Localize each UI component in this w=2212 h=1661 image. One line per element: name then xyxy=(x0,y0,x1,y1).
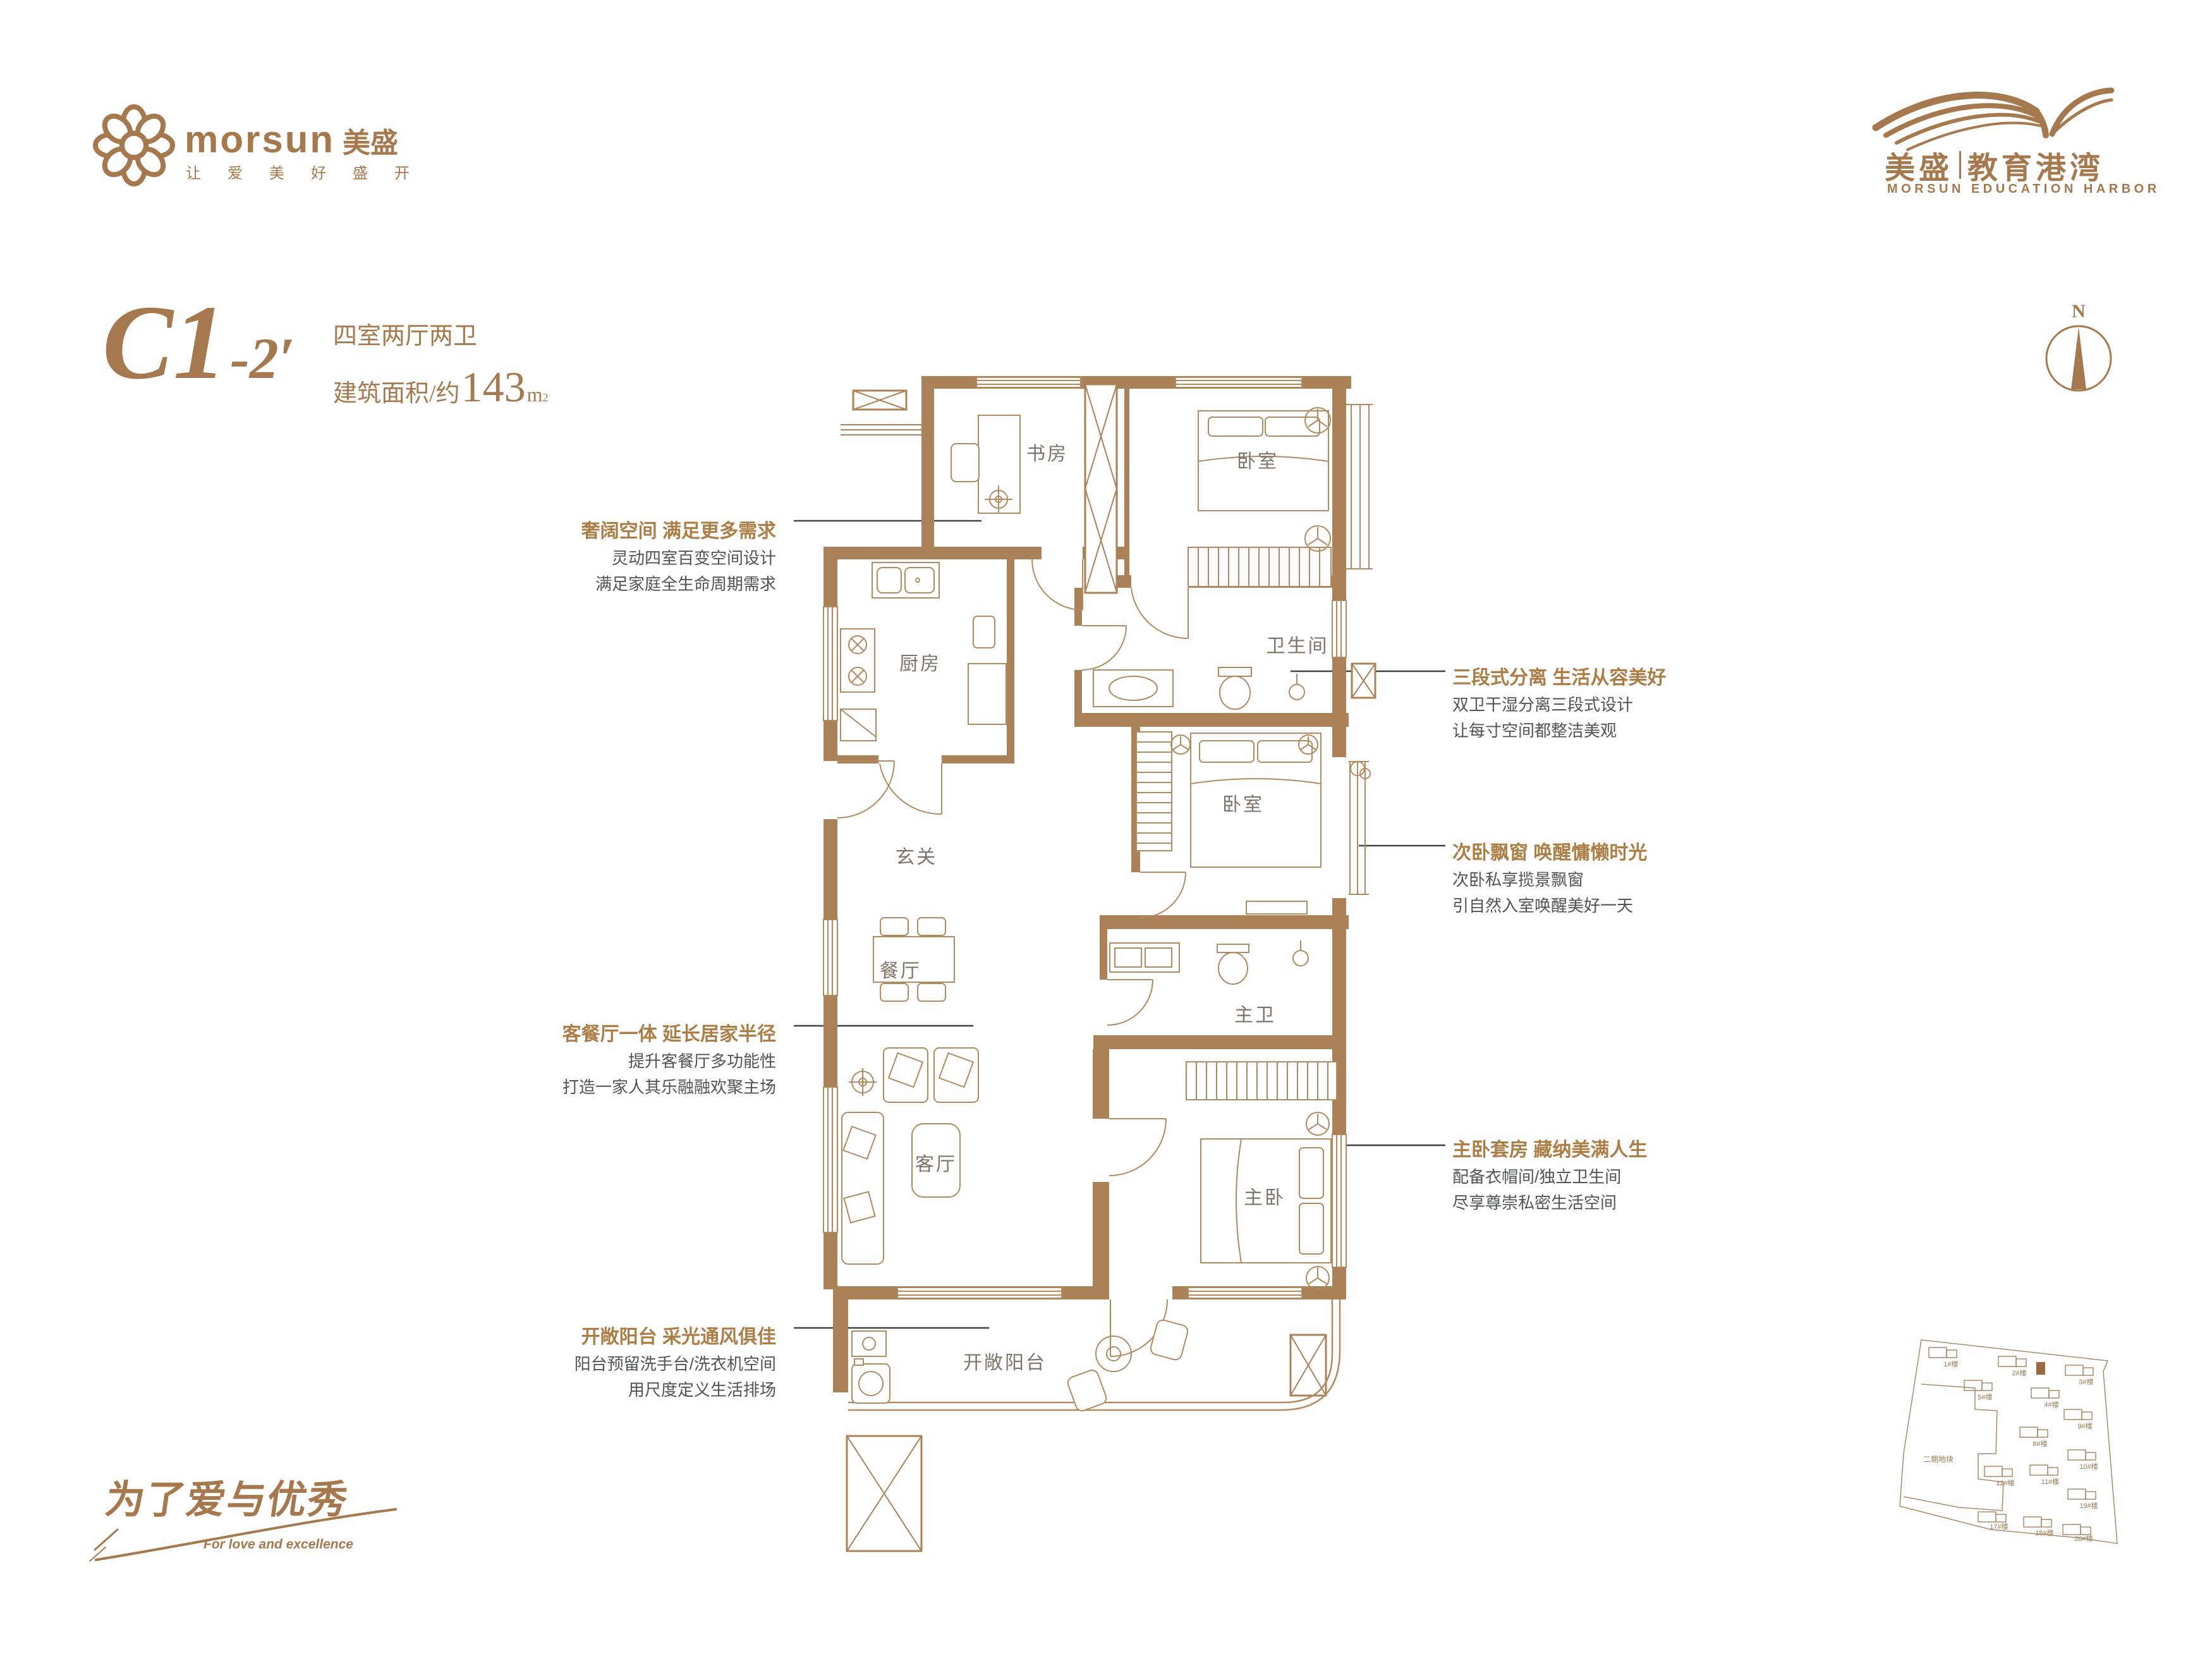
cutting-board xyxy=(973,616,995,648)
annotation-line: 次卧私享揽景飘窗 xyxy=(1452,867,1647,893)
area-prefix: 建筑面积/约 xyxy=(333,374,460,408)
site-label: 1#楼 xyxy=(1943,1360,1958,1368)
annotation-master-suite: 主卧套房 藏纳美满人生 配备衣帽间/独立卫生间 尽享尊崇私密生活空间 xyxy=(1452,1136,1647,1216)
slogan-cn: 为了爱与优秀 xyxy=(102,1468,353,1524)
annotation-line: 灵动四室百变空间设计 xyxy=(581,545,776,571)
annotation-line: 打造一家人其乐融融欢聚主场 xyxy=(562,1074,776,1100)
area-value: 143 xyxy=(461,362,526,412)
project-cn-left: 美盛 xyxy=(1885,143,1953,187)
entry-door xyxy=(837,761,894,818)
project-logo-en: MORSUN EDUCATION HARBOR xyxy=(1887,182,2160,197)
annotation-title: 三段式分离 生活从容美好 xyxy=(1452,664,1666,692)
stove xyxy=(841,629,875,692)
fan-symbol xyxy=(1171,735,1190,754)
annotation-bath-separation: 三段式分离 生活从容美好 双卫干湿分离三段式设计 让每寸空间都整洁美观 xyxy=(1452,664,1666,744)
room-label-master-bedroom: 主卧 xyxy=(1244,1188,1285,1208)
vanity xyxy=(1093,670,1173,707)
site-labels: 1#楼 2#楼 3#楼 5#楼 4#楼 9#楼 8#楼 10#楼 12#楼 11… xyxy=(1923,1360,2098,1543)
kitchen-cabinet xyxy=(968,664,1006,724)
site-label: 9#楼 xyxy=(2077,1421,2092,1430)
closet xyxy=(1136,732,1172,851)
annotation-title: 开敞阳台 采光通风俱佳 xyxy=(574,1323,776,1351)
room-label-kitchen: 厨房 xyxy=(899,654,941,674)
master-bedroom-door xyxy=(1109,1119,1166,1176)
annotation-space: 奢阔空间 满足更多需求 灵动四室百变空间设计 满足家庭全生命周期需求 xyxy=(581,518,776,597)
room-label-bedroom-top: 卧室 xyxy=(1237,451,1279,472)
armchair xyxy=(934,1048,978,1102)
site-label: 12#楼 xyxy=(1996,1478,2014,1487)
laundry-sink xyxy=(852,1331,886,1356)
annotation-line: 阳台预留洗手台/洗衣机空间 xyxy=(574,1351,776,1377)
toilet xyxy=(1218,667,1251,709)
vanity xyxy=(1110,943,1179,972)
parcel-label: 二期地块 xyxy=(1923,1455,1954,1464)
site-label: 3#楼 xyxy=(2079,1377,2093,1386)
annotation-title: 奢阔空间 满足更多需求 xyxy=(581,518,776,545)
site-label: 4#楼 xyxy=(2044,1400,2058,1409)
site-label: 17#楼 xyxy=(1990,1522,2008,1531)
compass-north-label: N xyxy=(2072,301,2086,322)
annotation-line: 引自然入室唤醒美好一天 xyxy=(1452,893,1647,919)
master-bath-door xyxy=(1107,980,1153,1025)
poster-canvas: N xyxy=(0,0,2212,1661)
slogan-en: For love and excellence xyxy=(204,1537,353,1552)
highlighted-unit xyxy=(2036,1362,2045,1375)
room-label-dining: 餐厅 xyxy=(880,961,921,982)
balcony-chair xyxy=(1066,1368,1108,1413)
flower-icon xyxy=(95,107,173,184)
floor-plan: 书房 卧室 卫生间 厨房 玄关 卧室 餐厅 主卫 客厅 主卧 开敞阳台 xyxy=(823,376,1375,1551)
closet xyxy=(1186,1062,1337,1100)
annotation-line: 双卫干湿分离三段式设计 xyxy=(1452,692,1666,718)
sofa xyxy=(842,1112,884,1264)
site-boundary xyxy=(1900,1340,2117,1543)
annotation-line: 尽享尊崇私密生活空间 xyxy=(1452,1190,1647,1216)
compass-needle xyxy=(2071,327,2086,389)
fan-symbol xyxy=(1306,1112,1329,1135)
dresser xyxy=(1246,901,1307,914)
annotation-line: 满足家庭全生命周期需求 xyxy=(581,571,776,597)
side-table-symbol xyxy=(849,1068,877,1096)
site-label: 20#楼 xyxy=(2074,1534,2093,1543)
site-label: 5#楼 xyxy=(1978,1392,1992,1401)
room-label-study: 书房 xyxy=(1026,444,1068,465)
site-label: 10#楼 xyxy=(2079,1462,2098,1471)
annotation-line: 提升客餐厅多功能性 xyxy=(562,1049,776,1074)
wardrobe xyxy=(1188,547,1331,587)
brand-tagline: 让爱美好盛开 xyxy=(186,161,436,183)
toilet xyxy=(1217,944,1249,984)
room-label-master-bath: 主卫 xyxy=(1234,1005,1276,1026)
bathroom-door xyxy=(1082,626,1126,670)
site-label: 2#楼 xyxy=(2012,1368,2026,1377)
shower-symbol xyxy=(1289,674,1304,700)
area-unit: m xyxy=(527,383,543,406)
fan-symbol xyxy=(1306,1267,1329,1289)
washing-machine xyxy=(852,1359,890,1403)
annotation-line: 用尺度定义生活排场 xyxy=(574,1377,776,1403)
logo-divider xyxy=(1959,151,1961,179)
desk-chair xyxy=(951,444,979,482)
kitchen-door xyxy=(880,764,942,814)
bay-windows xyxy=(1346,405,1373,894)
annotation-living-dining: 客餐厅一体 延长居家半径 提升客餐厅多功能性 打造一家人其乐融融欢聚主场 xyxy=(562,1021,776,1100)
area-sup: 2 xyxy=(542,391,548,405)
brand-logo-cn: 美盛 xyxy=(343,128,398,159)
annotation-title: 次卧飘窗 唤醒慵懒时光 xyxy=(1452,839,1647,867)
compass: N xyxy=(2046,301,2111,391)
room-label-balcony: 开敞阳台 xyxy=(963,1353,1047,1373)
armchair xyxy=(884,1048,928,1102)
unit-code-suffix: -2′ xyxy=(230,325,295,392)
unit-title: C1 -2′ xyxy=(102,289,295,396)
annotation-title: 主卧套房 藏纳美满人生 xyxy=(1452,1136,1647,1164)
annotation-title: 客餐厅一体 延长居家半径 xyxy=(562,1021,776,1049)
annotation-line: 让每寸空间都整洁美观 xyxy=(1452,718,1666,744)
annotation-balcony: 开敞阳台 采光通风俱佳 阳台预留洗手台/洗衣机空间 用尺度定义生活排场 xyxy=(574,1323,776,1403)
wing-swoosh-icon xyxy=(1876,90,2112,150)
brand-logo-text: morsun xyxy=(185,118,335,161)
room-label-living: 客厅 xyxy=(915,1154,957,1175)
site-label: 11#楼 xyxy=(2041,1477,2060,1486)
annotation-bay-window: 次卧飘窗 唤醒慵懒时光 次卧私享揽景飘窗 引自然入室唤醒美好一天 xyxy=(1452,839,1647,919)
unit-spec: 四室两厅两卫 建筑面积/约 143 m 2 xyxy=(333,316,548,412)
room-label-foyer: 玄关 xyxy=(896,847,937,868)
balcony-chair xyxy=(1150,1318,1189,1361)
project-logo-cn: 美盛 教育港湾 xyxy=(1885,143,2104,187)
phase2-parcel xyxy=(1904,1384,2003,1511)
unit-area: 建筑面积/约 143 m 2 xyxy=(333,362,548,412)
bedroom-middle-door xyxy=(1140,872,1186,918)
bedroom-top-door xyxy=(1131,588,1188,638)
project-cn-right: 教育港湾 xyxy=(1967,143,2104,187)
shower-symbol xyxy=(1293,940,1308,966)
floorplan-poster: N xyxy=(0,0,2212,1661)
brand-logo: morsun美盛 xyxy=(185,118,398,161)
annotation-line: 配备衣帽间/独立卫生间 xyxy=(1452,1164,1647,1190)
site-plan: 1#楼 2#楼 3#楼 5#楼 4#楼 9#楼 8#楼 10#楼 12#楼 11… xyxy=(1900,1340,2117,1543)
room-label-bathroom: 卫生间 xyxy=(1267,636,1329,657)
fridge xyxy=(841,709,876,741)
site-label: 19#楼 xyxy=(2079,1501,2098,1510)
site-label: 8#楼 xyxy=(2033,1439,2047,1448)
unit-code: C1 xyxy=(102,289,226,396)
kitchen-sink xyxy=(872,563,939,598)
unit-rooms-spec: 四室两厅两卫 xyxy=(333,316,548,351)
room-label-bedroom-middle: 卧室 xyxy=(1222,794,1264,815)
site-label: 18#楼 xyxy=(2035,1528,2053,1537)
plant xyxy=(1351,762,1370,779)
